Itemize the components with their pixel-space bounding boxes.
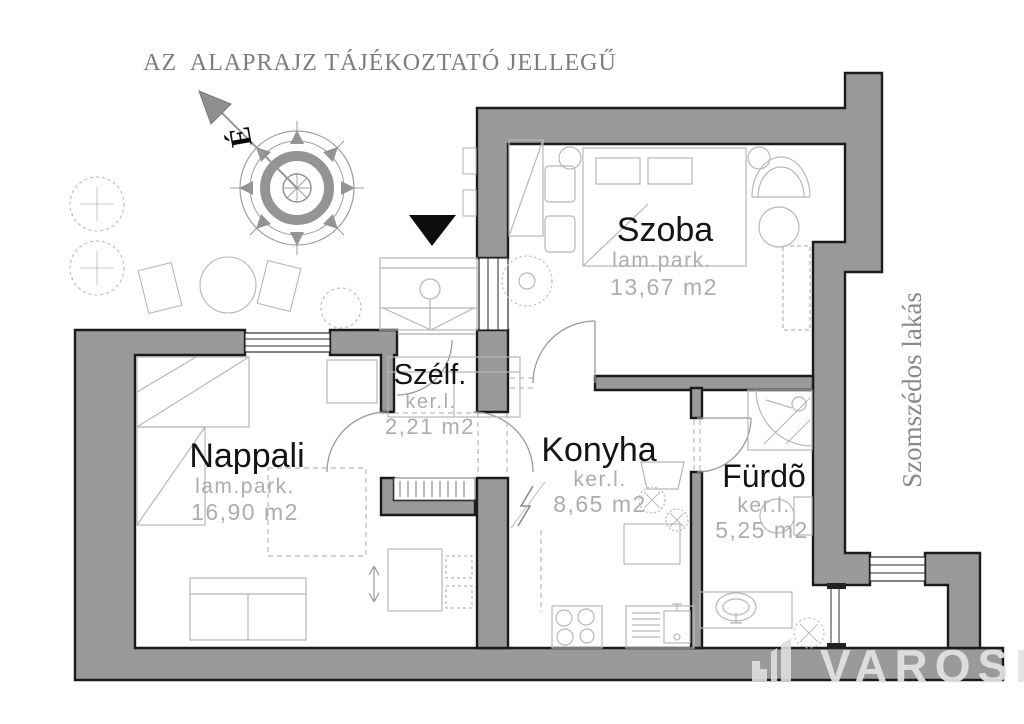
- plan-title: AZ ALAPRAJZ TÁJÉKOZTATÓ JELLEGŰ: [143, 49, 617, 76]
- side-table: [759, 207, 799, 247]
- chair: [446, 556, 472, 578]
- wall-szelf-right-lower: [477, 330, 508, 412]
- curtain: [783, 246, 810, 330]
- bath-counter: [700, 592, 792, 628]
- room-area-furdo: 5,25 m2: [715, 517, 809, 543]
- room-floor-szoba: lam.park.: [612, 249, 712, 272]
- watermark-brand: VAROSI: [820, 640, 1024, 692]
- room-name-nappali: Nappali: [189, 437, 304, 475]
- room-area-nappali: 16,90 m2: [191, 499, 299, 525]
- room-name-furdo: Fürdõ: [722, 458, 806, 494]
- wall-szoba-konyha: [595, 376, 813, 390]
- room-floor-nappali: lam.park.: [195, 475, 295, 498]
- north-arrow-head: [199, 91, 231, 124]
- room-floor-szelf: ker.l.: [405, 391, 456, 413]
- door-szelf-konyha: [473, 412, 533, 472]
- side-table: [327, 360, 377, 403]
- window-szelf-side: [479, 258, 508, 330]
- table: [388, 549, 442, 611]
- wall-neighbor-corner: [925, 553, 980, 648]
- kitchen-table: [624, 524, 680, 564]
- compass: É: [199, 91, 364, 255]
- terrace-table: [200, 257, 256, 313]
- electric-symbol: [518, 486, 533, 526]
- neighbor-apartment-label: Szomszédos lakás: [897, 292, 927, 488]
- chair: [545, 166, 575, 202]
- window-nappali-terrace: [245, 333, 330, 352]
- sink: [626, 606, 694, 648]
- room-floor-furdo: ker.l.: [737, 494, 790, 517]
- wall-konyha-furdo-upper: [691, 388, 702, 418]
- radiator: [394, 478, 475, 500]
- direction-arrow: [369, 566, 379, 602]
- wall-szoba-outer: [477, 73, 882, 585]
- room-name-szoba: Szoba: [617, 211, 713, 249]
- terrace-chair: [257, 261, 301, 312]
- door-szelf-nappali: [327, 412, 387, 472]
- pillow: [648, 158, 692, 184]
- pillow: [596, 158, 640, 184]
- room-name-szelf: Szélf.: [394, 359, 467, 391]
- floorplan-page: É: [0, 0, 1024, 724]
- wall-lamp: [463, 148, 476, 174]
- terrace-chair: [138, 263, 182, 314]
- chair: [446, 586, 472, 608]
- wall-nappali-top-segment: [330, 330, 397, 412]
- entrance-marker-triangle: [409, 215, 456, 246]
- window-neighbor-wall: [870, 557, 925, 581]
- floorplan-svg: É: [0, 0, 1024, 724]
- compass-north-label: É: [223, 124, 259, 149]
- room-floor-konyha: ker.l.: [573, 468, 626, 491]
- room-name-konyha: Konyha: [541, 431, 656, 469]
- armchair: [752, 157, 810, 197]
- room-area-konyha: 8,65 m2: [553, 491, 647, 517]
- wall-nappali-konyha: [477, 478, 508, 648]
- room-area-szoba: 13,67 m2: [610, 274, 718, 300]
- room-area-szelf: 2,21 m2: [385, 414, 475, 439]
- north-arrow-shaft: [221, 112, 297, 188]
- walls: [75, 73, 1003, 680]
- door-szoba: [533, 321, 595, 383]
- nightstand: [748, 147, 770, 169]
- shower: [748, 390, 812, 450]
- bush: [321, 288, 361, 328]
- wall-lamp: [463, 190, 476, 216]
- stove: [552, 606, 602, 648]
- chair: [545, 216, 575, 252]
- entrance-porch: [380, 258, 477, 330]
- plant: [502, 256, 552, 306]
